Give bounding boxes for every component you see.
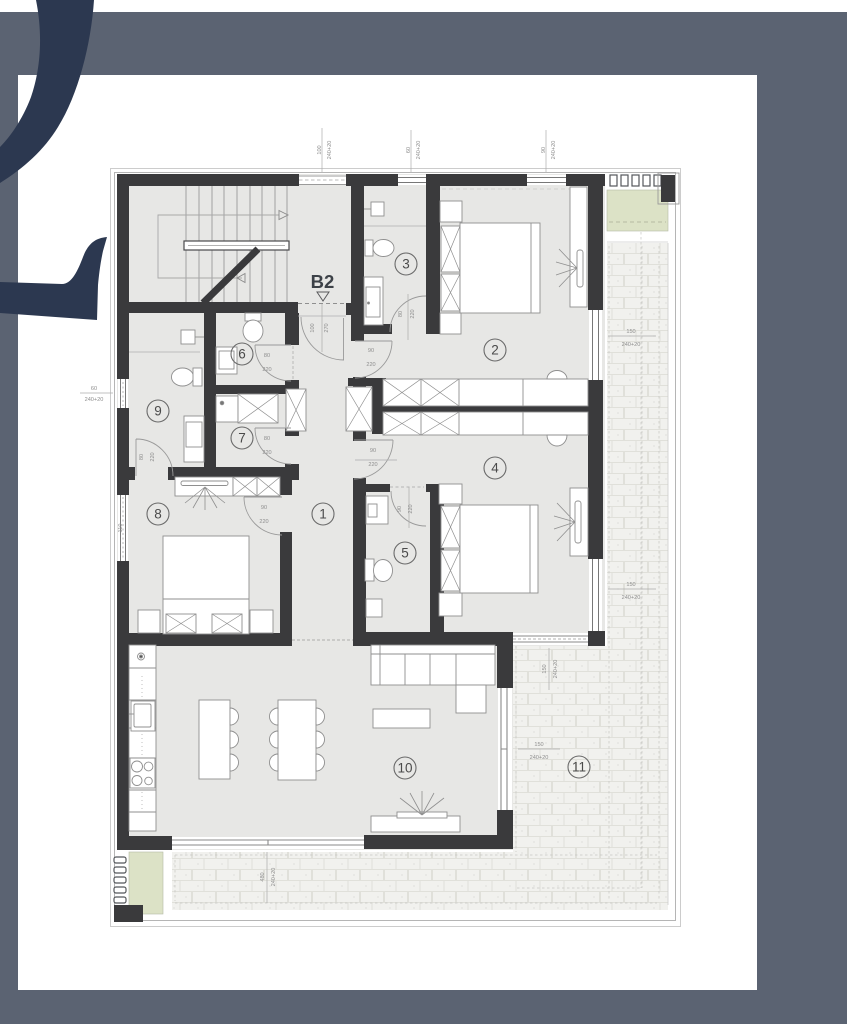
svg-text:80: 80	[139, 454, 145, 460]
svg-text:150: 150	[542, 664, 548, 673]
svg-text:220: 220	[366, 362, 375, 368]
svg-text:220: 220	[368, 462, 377, 468]
svg-text:60: 60	[406, 147, 412, 153]
svg-text:100: 100	[310, 323, 316, 332]
svg-text:9: 9	[154, 404, 162, 419]
svg-text:480: 480	[260, 872, 266, 881]
svg-text:5: 5	[401, 546, 409, 561]
svg-text:240+20: 240+20	[622, 595, 641, 601]
svg-text:100: 100	[317, 145, 323, 154]
svg-text:90: 90	[397, 506, 403, 512]
svg-text:60: 60	[91, 386, 97, 392]
svg-text:220: 220	[262, 450, 271, 456]
svg-text:220: 220	[259, 519, 268, 525]
svg-text:11: 11	[572, 760, 586, 775]
svg-text:270: 270	[324, 323, 330, 332]
svg-text:B2: B2	[311, 271, 335, 292]
svg-text:240+20: 240+20	[271, 868, 277, 887]
svg-text:240+20: 240+20	[553, 660, 559, 679]
svg-text:10: 10	[397, 761, 412, 776]
svg-text:3: 3	[402, 257, 410, 272]
svg-text:90: 90	[368, 348, 374, 354]
svg-text:150: 150	[626, 582, 635, 588]
svg-text:150: 150	[534, 742, 543, 748]
svg-text:80: 80	[264, 353, 270, 359]
svg-text:240+20: 240+20	[530, 755, 549, 761]
svg-text:90: 90	[541, 147, 547, 153]
svg-text:6: 6	[238, 347, 246, 362]
svg-text:240+20: 240+20	[416, 141, 422, 160]
svg-text:220: 220	[150, 452, 156, 461]
svg-text:80: 80	[264, 436, 270, 442]
svg-text:1: 1	[319, 507, 327, 522]
svg-text:240+20: 240+20	[551, 141, 557, 160]
svg-text:80: 80	[398, 311, 404, 317]
svg-text:90: 90	[261, 505, 267, 511]
svg-text:110: 110	[118, 524, 124, 533]
svg-text:8: 8	[154, 507, 162, 522]
svg-text:220: 220	[410, 309, 416, 318]
svg-text:220: 220	[408, 504, 414, 513]
svg-text:4: 4	[491, 461, 499, 476]
svg-text:220: 220	[262, 367, 271, 373]
svg-text:240+20: 240+20	[85, 397, 104, 403]
svg-text:240+20: 240+20	[622, 342, 641, 348]
svg-text:2: 2	[491, 343, 499, 358]
svg-text:7: 7	[238, 431, 246, 446]
svg-text:90: 90	[370, 448, 376, 454]
svg-text:150: 150	[626, 329, 635, 335]
svg-text:240+20: 240+20	[327, 141, 333, 160]
